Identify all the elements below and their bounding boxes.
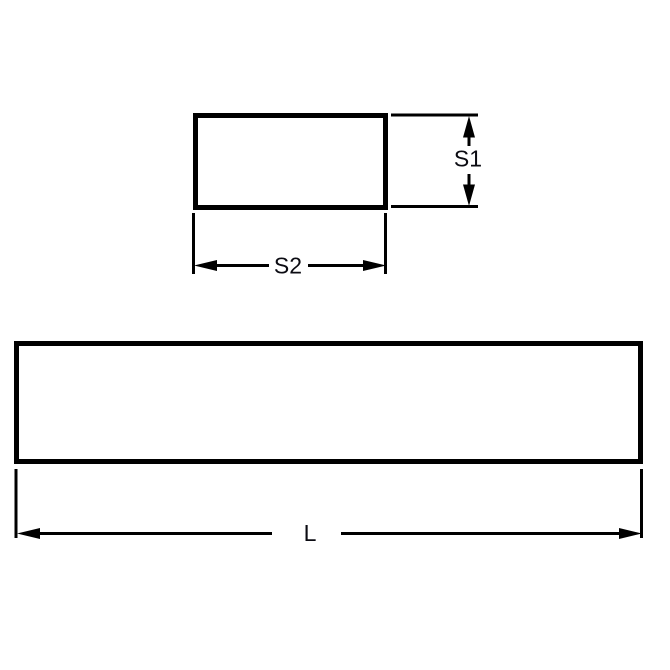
svg-text:L: L: [304, 520, 317, 546]
svg-text:S2: S2: [274, 253, 302, 279]
svg-text:S1: S1: [454, 146, 482, 172]
